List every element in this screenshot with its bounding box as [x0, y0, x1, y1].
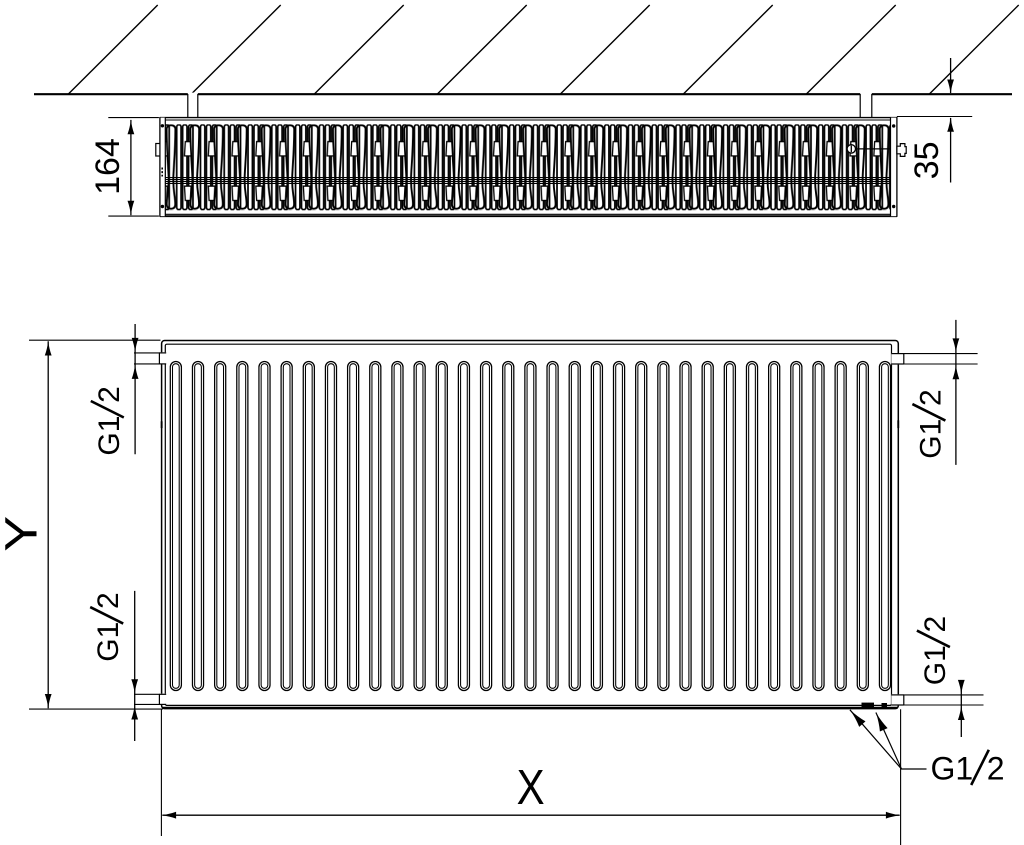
svg-text:G1: G1: [919, 645, 952, 685]
svg-text:G1: G1: [92, 622, 125, 662]
svg-text:Y: Y: [0, 516, 47, 552]
svg-text:G1: G1: [914, 419, 947, 459]
svg-text:2: 2: [987, 751, 1005, 787]
svg-text:X: X: [517, 761, 545, 815]
svg-text:2: 2: [919, 616, 952, 633]
svg-text:2: 2: [92, 592, 125, 609]
svg-text:G1: G1: [931, 751, 974, 787]
svg-text:35: 35: [908, 141, 946, 179]
svg-text:G1: G1: [93, 416, 126, 456]
svg-text:2: 2: [914, 389, 947, 406]
svg-text:2: 2: [93, 386, 126, 403]
svg-text:164: 164: [89, 138, 127, 195]
